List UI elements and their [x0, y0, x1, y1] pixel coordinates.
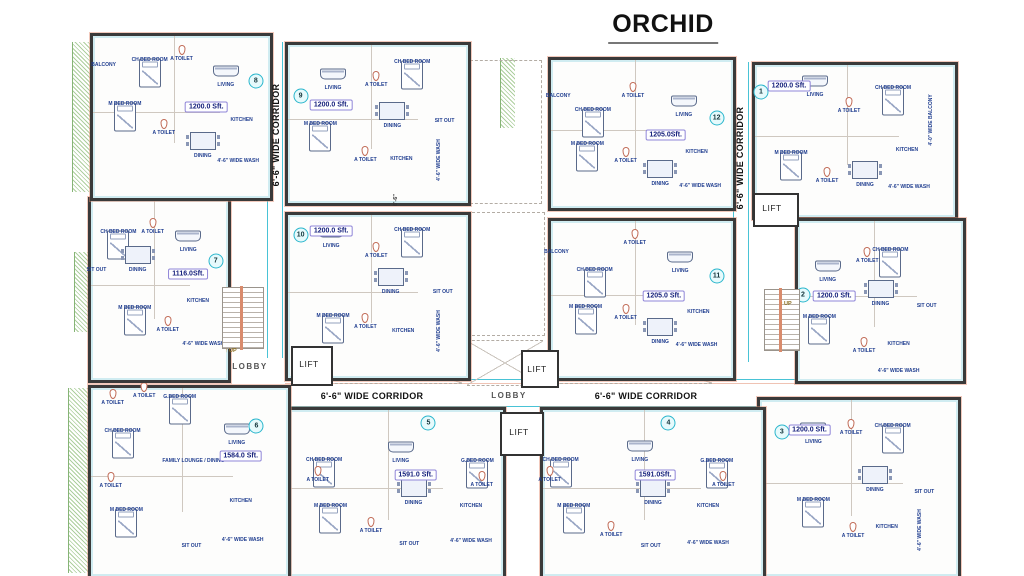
unit-area-badge: 1200.0 Sft.: [813, 291, 856, 302]
room-label: 4'-6" WIDE WASH: [217, 158, 259, 164]
room-label: 4'-6" WIDE WASH: [679, 183, 721, 189]
toilet-icon: [109, 389, 116, 399]
unit-area-badge: 1116.0Sft.: [168, 268, 208, 279]
label-6-6-wide-corridor: 6'-6" WIDE CORRIDOR: [595, 391, 698, 401]
room-label: LIVING: [819, 277, 836, 283]
unit-block-3: 31200.0 Sft.LIVINGA TOILETCH BED ROOMM B…: [757, 397, 961, 576]
room-label: A TOILET: [156, 327, 179, 333]
toilet-icon: [824, 167, 831, 177]
room-label: FAMILY LOUNGE / DINING: [162, 458, 224, 464]
toilet-icon: [622, 304, 629, 314]
staircase: [222, 287, 264, 349]
room-label: CH BED ROOM: [575, 107, 611, 113]
room-label: A TOILET: [360, 528, 383, 534]
room-label: SIT OUT: [435, 118, 455, 124]
room-label: M BED ROOM: [803, 314, 836, 320]
label-6-6-wide-corridor: 6'-6" WIDE CORRIDOR: [271, 84, 281, 187]
unit-area-badge: 1591.0 Sft.: [394, 469, 437, 480]
room-label: M BED ROOM: [571, 141, 604, 147]
toilet-icon: [373, 242, 380, 252]
room-label: M BED ROOM: [557, 503, 590, 509]
label-up: UP: [780, 301, 791, 307]
unit-number-badge: 9: [293, 88, 308, 103]
room-label: LIVING: [323, 243, 340, 249]
unit-number-badge: 3: [774, 424, 789, 439]
unit-area-badge: 1591.0Sft.: [635, 469, 676, 480]
label-lobby: LOBBY: [232, 364, 268, 370]
unit-block-11: 111205.0 Sft.BALCONYCH BED ROOMA TOILETL…: [548, 218, 736, 381]
toilet-icon: [631, 229, 638, 239]
room-label: KITCHEN: [697, 503, 719, 509]
room-label: LIVING: [217, 82, 234, 88]
room-label: A TOILET: [842, 533, 865, 539]
room-label: G.BED ROOM: [700, 458, 733, 464]
room-label: LIVING: [672, 268, 689, 274]
toilet-icon: [608, 521, 615, 531]
unit-block-8: 81200.0 Sft.BALCONYCH BED ROOMA TOILETLI…: [90, 33, 273, 201]
room-label: M BED ROOM: [110, 507, 143, 513]
room-label: A TOILET: [853, 348, 876, 354]
unit-number-badge: 6: [249, 418, 264, 433]
unit-area-badge: 1200.0 Sft.: [788, 424, 831, 435]
room-label: CH BED ROOM: [875, 85, 911, 91]
room-label: SIT OUT: [641, 543, 661, 549]
room-label: SIT OUT: [182, 543, 202, 549]
room-label: LIVING: [180, 247, 197, 253]
room-label: KITCHEN: [230, 498, 252, 504]
unit-number-badge: 5: [421, 416, 436, 431]
room-label: KITCHEN: [888, 341, 910, 347]
room-label: A TOILET: [133, 393, 156, 399]
room-label: BALCONY: [91, 62, 116, 68]
unit-block-6: 61584.0 Sft.A TOILETA TOILETG.BED ROOMCH…: [88, 385, 291, 576]
room-label: 4'-6" WIDE WASH: [436, 310, 442, 352]
room-label: SIT OUT: [399, 541, 419, 547]
toilet-icon: [178, 45, 185, 55]
room-label: A TOILET: [365, 253, 388, 259]
toilet-icon: [846, 97, 853, 107]
toilet-icon: [362, 313, 369, 323]
room-label: 4'-6" WIDE WASH: [436, 140, 442, 182]
toilet-icon: [373, 71, 380, 81]
unit-block-5: 51591.0 Sft.CH BED ROOMLIVINGG.BED ROOMA…: [287, 407, 506, 576]
sofa-icon: [671, 95, 697, 106]
label-lift: LIFT: [527, 364, 546, 374]
room-label: CH BED ROOM: [875, 423, 911, 429]
room-label: A TOILET: [712, 482, 735, 488]
room-label: DINING: [405, 500, 423, 506]
label-lift: LIFT: [299, 359, 318, 369]
room-label: 4'-6" WIDE WASH: [450, 538, 492, 544]
room-label: A TOILET: [306, 477, 329, 483]
room-label: LIVING: [228, 440, 245, 446]
room-label: A TOILET: [153, 130, 176, 136]
room-label: KITCHEN: [231, 117, 253, 123]
room-label: A TOILET: [838, 108, 861, 114]
unit-block-4: 41591.0Sft.CH BED ROOMLIVINGG.BED ROOMA …: [540, 407, 766, 576]
sofa-icon: [388, 442, 414, 453]
room-label: G.BED ROOM: [461, 458, 494, 464]
room-label: M BED ROOM: [797, 497, 830, 503]
room-label: CH BED ROOM: [132, 57, 168, 63]
room-label: A TOILET: [816, 178, 839, 184]
room-label: LIVING: [392, 458, 409, 464]
label-lobby: LOBBY: [491, 393, 527, 399]
sofa-icon: [175, 231, 201, 242]
room-label: DINING: [129, 267, 147, 273]
room-label: M BED ROOM: [316, 313, 349, 319]
dining-table-icon: [647, 160, 673, 178]
floor-plan: ORCHID 11200.0 Sft.LIVINGCH BED ROOMA TO…: [0, 0, 1024, 576]
room-label: DINING: [856, 182, 874, 188]
dining-table-icon: [640, 479, 666, 497]
room-label: CH BED ROOM: [100, 229, 136, 235]
sofa-icon: [627, 440, 653, 451]
unit-area-badge: 1200.0 Sft.: [768, 81, 811, 92]
room-label: A TOILET: [101, 400, 124, 406]
toilet-icon: [850, 522, 857, 532]
toilet-icon: [149, 218, 156, 228]
label-6-6: 6'-6": [393, 194, 399, 206]
green-hatch-strip: [68, 388, 89, 573]
room-label: SIT OUT: [917, 303, 937, 309]
room-label: A TOILET: [840, 430, 863, 436]
unit-number-badge: 12: [709, 110, 724, 125]
unit-area-badge: 1584.0 Sft.: [219, 450, 262, 461]
staircase: [764, 289, 800, 351]
dining-table-icon: [190, 132, 216, 150]
room-label: DINING: [866, 487, 884, 493]
toilet-icon: [622, 147, 629, 157]
room-label: 4'-6" WIDE WASH: [917, 509, 923, 551]
room-label: A TOILET: [170, 56, 193, 62]
room-label: A TOILET: [365, 82, 388, 88]
room-label: 4'-6" WIDE WASH: [222, 537, 264, 543]
room-label: CH BED ROOM: [872, 247, 908, 253]
toilet-icon: [160, 119, 167, 129]
toilet-icon: [629, 82, 636, 92]
room-label: M BED ROOM: [118, 305, 151, 311]
room-label: M BED ROOM: [108, 101, 141, 107]
toilet-icon: [164, 316, 171, 326]
room-label: SIT OUT: [433, 289, 453, 295]
room-label: A TOILET: [623, 240, 646, 246]
unit-number-badge: 10: [293, 227, 308, 242]
room-label: LIVING: [807, 92, 824, 98]
room-label: 4'-6" WIDE WASH: [888, 184, 930, 190]
dining-table-icon: [401, 479, 427, 497]
dining-table-icon: [862, 466, 888, 484]
sofa-icon: [213, 65, 239, 76]
sofa-icon: [224, 423, 250, 434]
sofa-icon: [815, 261, 841, 272]
room-label: KITCHEN: [390, 156, 412, 162]
open-duct-area: [467, 212, 545, 336]
room-label: BALCONY: [546, 93, 571, 99]
unit-number-badge: 4: [661, 416, 676, 431]
unit-area-badge: 1205.0 Sft.: [643, 291, 686, 302]
sofa-icon: [667, 252, 693, 263]
room-label: LIVING: [325, 85, 342, 91]
room-label: KITCHEN: [876, 524, 898, 530]
toilet-icon: [362, 146, 369, 156]
plan-title: ORCHID: [608, 10, 718, 44]
unit-block-7: 71116.0Sft.CH BED ROOMA TOILETLIVINGSIT …: [88, 197, 231, 383]
toilet-icon: [107, 472, 114, 482]
dining-table-icon: [868, 280, 894, 298]
sofa-icon: [320, 68, 346, 79]
room-label: DINING: [384, 123, 402, 129]
unit-number-badge: 7: [208, 254, 223, 269]
green-hatch-strip: [72, 42, 91, 192]
room-label: A TOILET: [354, 157, 377, 163]
room-label: 4'-6" WIDE WASH: [676, 342, 718, 348]
room-label: KITCHEN: [896, 147, 918, 153]
unit-number-badge: 1: [754, 85, 769, 100]
unit-block-9: 91200.0 Sft.LIVINGA TOILETCH BED ROOMM B…: [285, 42, 471, 206]
unit-number-badge: 8: [248, 74, 263, 89]
room-label: KITCHEN: [687, 309, 709, 315]
unit-area-badge: 1205.0Sft.: [645, 130, 686, 141]
toilet-icon: [367, 517, 374, 527]
room-label: DINING: [872, 301, 890, 307]
dining-table-icon: [378, 268, 404, 286]
room-label: A TOILET: [99, 483, 122, 489]
room-label: 4'-6" WIDE WASH: [183, 341, 225, 347]
room-label: CH BED ROOM: [306, 457, 342, 463]
room-label: DINING: [194, 153, 212, 159]
room-label: 4'-6" WIDE WASH: [687, 540, 729, 546]
room-label: BALCONY: [544, 249, 569, 255]
dining-table-icon: [852, 161, 878, 179]
toilet-icon: [848, 419, 855, 429]
unit-area-badge: 1200.0 Sft.: [310, 100, 353, 111]
room-label: SIT OUT: [87, 267, 107, 273]
toilet-icon: [861, 337, 868, 347]
room-label: M BED ROOM: [774, 150, 807, 156]
label-up: UP: [225, 348, 236, 354]
room-label: LIVING: [631, 457, 648, 463]
room-label: 4'-6" WIDE WASH: [878, 368, 920, 374]
room-label: G.BED ROOM: [163, 394, 196, 400]
label-lift: LIFT: [509, 427, 528, 437]
unit-area-badge: 1200.0 Sft.: [185, 102, 228, 113]
room-label: A TOILET: [614, 315, 637, 321]
room-label: KITCHEN: [392, 328, 414, 334]
unit-block-12: 121205.0Sft.BALCONYCH BED ROOMA TOILETLI…: [548, 57, 736, 211]
room-label: LIVING: [805, 439, 822, 445]
room-label: A TOILET: [354, 324, 377, 330]
label-6-6-wide-corridor: 6'-6" WIDE CORRIDOR: [735, 107, 745, 210]
green-hatch-strip: [74, 252, 89, 332]
room-label: KITCHEN: [460, 503, 482, 509]
room-label: M BED ROOM: [314, 503, 347, 509]
room-label: A TOILET: [622, 93, 645, 99]
room-label: CH BED ROOM: [577, 267, 613, 273]
room-label: DINING: [382, 289, 400, 295]
room-label: CH BED ROOM: [394, 59, 430, 65]
toilet-icon: [141, 382, 148, 392]
room-label: M BED ROOM: [304, 121, 337, 127]
room-label: A TOILET: [856, 258, 879, 264]
room-label: SIT OUT: [914, 489, 934, 495]
room-label: CH BED ROOM: [104, 428, 140, 434]
dining-table-icon: [125, 246, 151, 264]
label-6-6-wide-corridor: 6'-6" WIDE CORRIDOR: [321, 391, 424, 401]
room-label: KITCHEN: [187, 298, 209, 304]
room-label: A TOILET: [141, 229, 164, 235]
room-label: A TOILET: [614, 158, 637, 164]
room-label: KITCHEN: [685, 149, 707, 155]
unit-area-badge: 1200.0 Sft.: [310, 226, 353, 237]
room-label: LIVING: [676, 112, 693, 118]
dining-table-icon: [379, 102, 405, 120]
room-label: DINING: [651, 181, 669, 187]
unit-block-2: 21200.0 Sft.LIVINGCH BED ROOMA TOILETM B…: [795, 218, 966, 384]
room-label: CH BED ROOM: [394, 227, 430, 233]
room-label: DINING: [644, 500, 662, 506]
room-label: CH BED ROOM: [543, 457, 579, 463]
room-label: A TOILET: [538, 477, 561, 483]
room-label: DINING: [651, 339, 669, 345]
stair-rail: [779, 288, 782, 352]
room-label: 4'-0" WIDE BALCONY: [928, 94, 934, 145]
room-label: A TOILET: [600, 532, 623, 538]
room-label: M BED ROOM: [569, 304, 602, 310]
label-lift: LIFT: [762, 203, 781, 213]
stair-rail: [240, 286, 243, 350]
unit-number-badge: 11: [709, 268, 724, 283]
toilet-icon: [864, 247, 871, 257]
open-duct-area: [470, 60, 542, 204]
room-label: A TOILET: [470, 482, 493, 488]
dining-table-icon: [647, 318, 673, 336]
